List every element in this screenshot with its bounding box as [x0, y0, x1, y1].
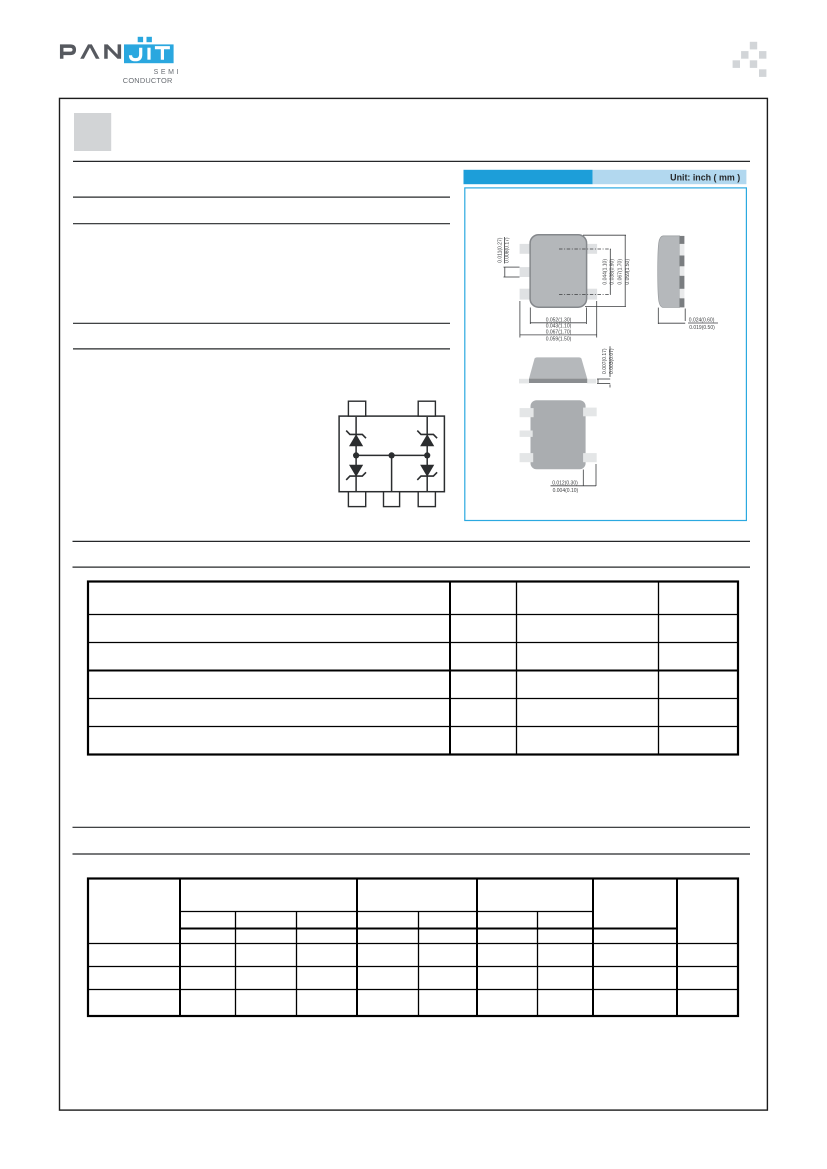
- svg-text:0.052(1.30): 0.052(1.30): [546, 317, 572, 323]
- svg-text:0.024(0.60): 0.024(0.60): [689, 317, 715, 323]
- svg-text:0.044(1.10): 0.044(1.10): [602, 259, 608, 285]
- svg-text:0.007(0.17): 0.007(0.17): [602, 348, 608, 374]
- svg-text:0.067(1.70): 0.067(1.70): [546, 329, 572, 335]
- svg-text:0.012(0.30): 0.012(0.30): [552, 480, 578, 486]
- svg-text:0.011(0.27): 0.011(0.27): [498, 237, 504, 263]
- svg-text:0.067(1.70): 0.067(1.70): [618, 259, 624, 285]
- svg-text:0.004(0.10): 0.004(0.10): [553, 488, 579, 494]
- svg-text:SEMI: SEMI: [154, 69, 182, 76]
- svg-text:0.059(1.50): 0.059(1.50): [625, 259, 631, 285]
- svg-text:0.008(0.17): 0.008(0.17): [504, 237, 510, 263]
- svg-text:0.059(1.50): 0.059(1.50): [546, 336, 572, 342]
- svg-text:0.038(0.90): 0.038(0.90): [609, 259, 615, 285]
- svg-text:0.003(0.07): 0.003(0.07): [609, 348, 615, 374]
- svg-text:Unit: inch ( mm ): Unit: inch ( mm ): [670, 172, 740, 182]
- svg-text:CONDUCTOR: CONDUCTOR: [123, 76, 173, 85]
- svg-text:0.019(0.50): 0.019(0.50): [689, 325, 715, 331]
